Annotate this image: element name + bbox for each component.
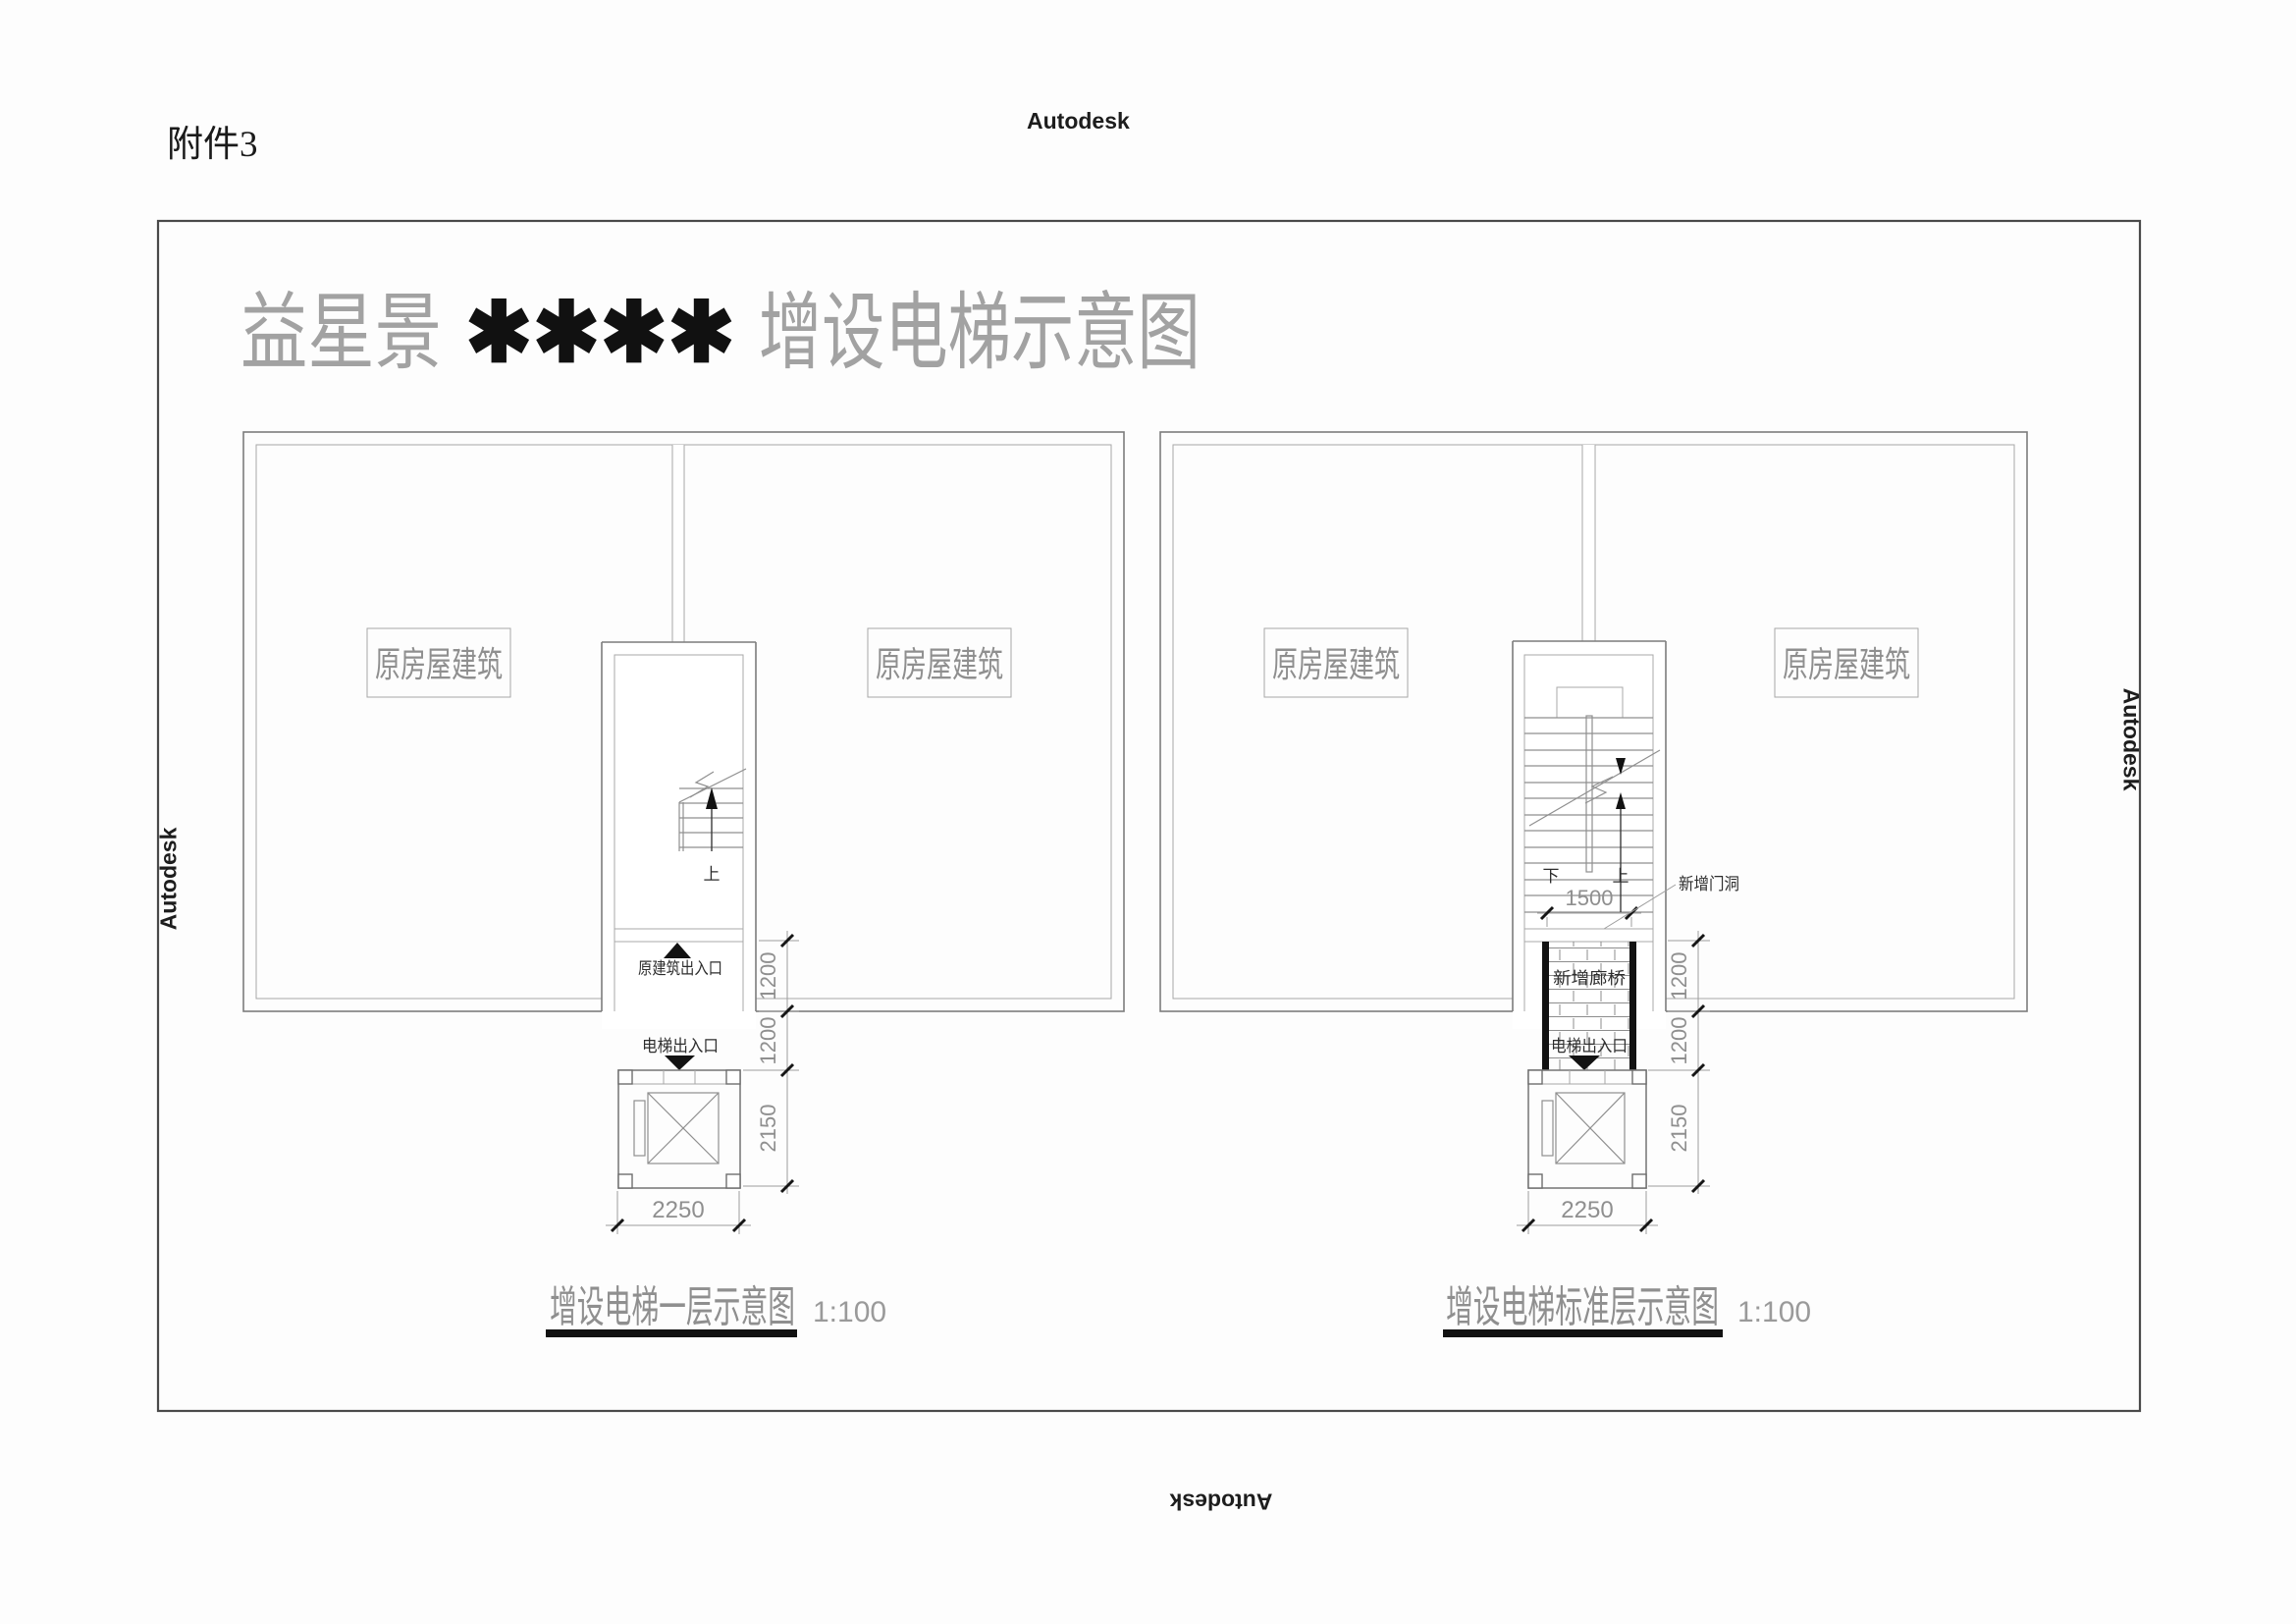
building-entrance-label: 原建筑出入口	[638, 959, 722, 978]
corridor-label: 新增廊桥	[1553, 969, 1626, 988]
stair-up-label: 上	[1613, 867, 1629, 886]
counterweight	[634, 1101, 645, 1156]
elevator-entrance-arrow	[665, 1056, 695, 1070]
drawing-title-prefix: 益星景	[240, 286, 442, 380]
corridor-wall-right	[1629, 942, 1636, 1070]
plan-standard-floor: 下 上 1500 新增门洞 原房屋建筑 原房屋建筑	[1160, 432, 2027, 1337]
dim-elevator-depth: 2150	[1667, 1105, 1691, 1153]
elevator-shaft	[1528, 1070, 1646, 1188]
corridor-wall-left	[1542, 942, 1549, 1070]
floor-plan-drawing: 益星景 ✱✱✱✱ 增设电梯示意图	[0, 0, 2296, 1624]
building-label-right: 原房屋建筑	[876, 644, 1003, 684]
stair-down-label: 下	[1543, 867, 1560, 886]
building-label-left: 原房屋建筑	[375, 644, 503, 684]
dim-walk-depth: 1200	[756, 1017, 780, 1065]
dim-entry-depth: 1200	[756, 952, 780, 1001]
plan-scale: 1:100	[813, 1296, 886, 1328]
dim-elevator-depth: 2150	[756, 1105, 780, 1153]
party-wall	[1582, 445, 1595, 641]
elevator-entrance-label: 电梯出入口	[642, 1037, 719, 1056]
width-dimension: 2250	[606, 1191, 751, 1234]
plan-scale: 1:100	[1737, 1296, 1811, 1328]
width-dimension: 2250	[1517, 1191, 1658, 1234]
plan-caption: 增设电梯一层示意图	[550, 1283, 795, 1331]
drawing-title: 益星景 ✱✱✱✱ 增设电梯示意图	[240, 286, 1201, 380]
dim-stair-width: 1500	[1566, 886, 1614, 910]
party-wall	[672, 445, 684, 644]
elevator-shaft	[618, 1070, 740, 1188]
counterweight	[1542, 1101, 1553, 1156]
sheet-frame	[158, 221, 2140, 1411]
plan-caption: 增设电梯标准层示意图	[1446, 1283, 1719, 1331]
elevator-entrance-label: 电梯出入口	[1551, 1037, 1628, 1056]
building-label-left: 原房屋建筑	[1272, 644, 1400, 684]
dim-entry-depth: 1200	[1667, 952, 1691, 1001]
dim-walk-depth: 1200	[1667, 1017, 1691, 1065]
door-opening-label: 新增门洞	[1679, 875, 1739, 893]
building-label-right: 原房屋建筑	[1783, 644, 1910, 684]
dim-elevator-width: 2250	[1561, 1197, 1613, 1223]
plan-first-floor: 上 原建筑出入口 原房屋建筑 原房屋建筑 电梯出入口	[243, 432, 1124, 1337]
drawing-title-suffix: 增设电梯示意图	[759, 286, 1201, 380]
drawing-page: 附件3 Autodesk Autodesk Autodesk Autodesk …	[0, 0, 2296, 1624]
caption-underline	[546, 1329, 797, 1337]
dim-elevator-width: 2250	[652, 1197, 704, 1223]
stair-up-label: 上	[704, 865, 721, 884]
caption-underline	[1443, 1329, 1723, 1337]
drawing-title-censored: ✱✱✱✱	[465, 286, 735, 380]
